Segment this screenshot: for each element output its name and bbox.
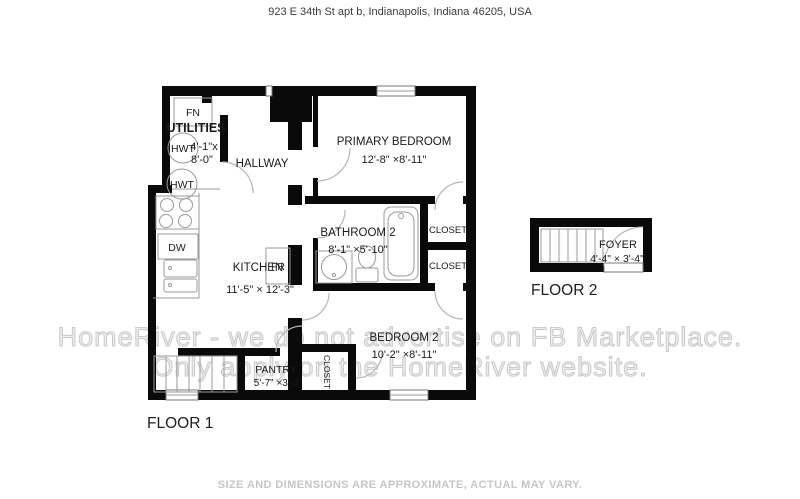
- floor1-stairs: [154, 356, 237, 392]
- refrigerator-label: FR: [271, 261, 285, 273]
- floor1-title: FLOOR 1: [147, 415, 213, 432]
- utilities-dims2: 8'-0": [191, 154, 213, 166]
- hallway-label: HALLWAY: [236, 158, 289, 170]
- bathroom-sink: [322, 255, 347, 280]
- foyer-dims: 4'-4" × 3'-4": [590, 253, 644, 265]
- primary-bedroom-dims: 12'-8" ×8'-11": [362, 154, 427, 166]
- closet-b-label: CLOSET: [429, 261, 467, 272]
- primary-bedroom-label: PRIMARY BEDROOM: [337, 136, 452, 148]
- foyer-label: FOYER: [599, 239, 637, 251]
- kitchen-dims: 11'-5" × 12'-3": [226, 284, 294, 296]
- window-bedroom2: [390, 390, 428, 400]
- floorplan-page: 923 E 34th St apt b, Indianapolis, India…: [0, 0, 800, 499]
- floor1-plan: UTILITIES 4'-1"x 8'-0" FN HWT HWT HALLWA…: [147, 86, 476, 432]
- toilet-tank: [356, 268, 378, 282]
- pantry-label: PANTRY: [255, 364, 297, 376]
- burner: [180, 199, 193, 212]
- burner: [179, 215, 192, 228]
- closet-a-door-arc: [435, 182, 463, 210]
- hwt-label-2: HWT: [170, 179, 194, 191]
- window-primary-bedroom: [377, 86, 415, 96]
- pantry-dims: 5'-7" ×3'-4": [254, 378, 303, 389]
- utilities-label: UTILITIES: [166, 121, 225, 135]
- furnace-label: FN: [186, 107, 200, 119]
- primary-bedroom-door-arc: [317, 148, 350, 181]
- burner: [160, 215, 173, 228]
- dishwasher-label: DW: [168, 242, 186, 254]
- hwt-label-1: HWT: [171, 143, 195, 155]
- bedroom2-label: BEDROOM 2: [369, 332, 438, 344]
- burner: [161, 199, 174, 212]
- floor2-title: FLOOR 2: [531, 282, 597, 299]
- floor2-plan: FOYER 4'-4" × 3'-4" FLOOR 2: [530, 218, 652, 299]
- closet-a-label: CLOSET: [429, 225, 467, 236]
- bedroom2-dims: 10'-2" ×8'-11": [372, 349, 437, 361]
- bathroom2-dims: 8'-1" ×5'-10": [328, 244, 387, 256]
- wall-slit: [266, 86, 272, 96]
- closet-c-label: CLOSET: [322, 355, 332, 389]
- bathroom2-label: BATHROOM 2: [320, 227, 395, 239]
- bedroom2-door-arc: [302, 293, 329, 320]
- floorplan-drawing: UTILITIES 4'-1"x 8'-0" FN HWT HWT HALLWA…: [0, 0, 800, 499]
- bathtub: [384, 207, 418, 280]
- closet-b-door-arc: [435, 291, 463, 319]
